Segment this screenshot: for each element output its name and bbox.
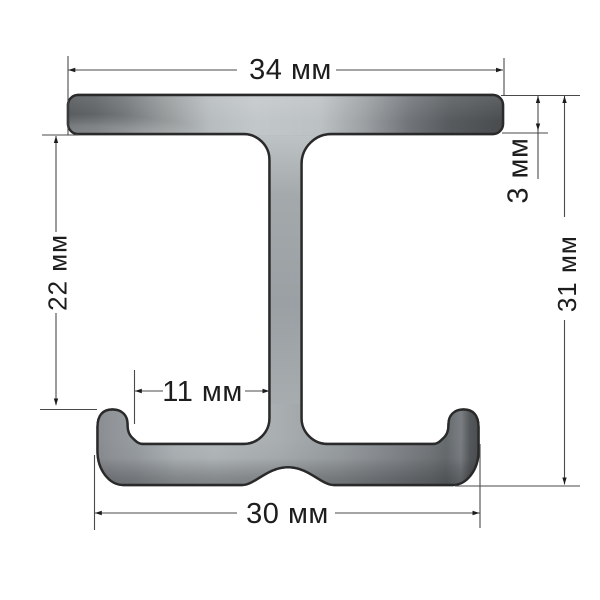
svg-text:30 мм: 30 мм [246,498,329,530]
svg-text:22 мм: 22 мм [43,234,73,311]
svg-text:31 мм: 31 мм [552,235,582,312]
svg-text:3 мм: 3 мм [503,138,535,204]
svg-text:34 мм: 34 мм [249,54,332,86]
svg-text:11 мм: 11 мм [162,376,243,408]
